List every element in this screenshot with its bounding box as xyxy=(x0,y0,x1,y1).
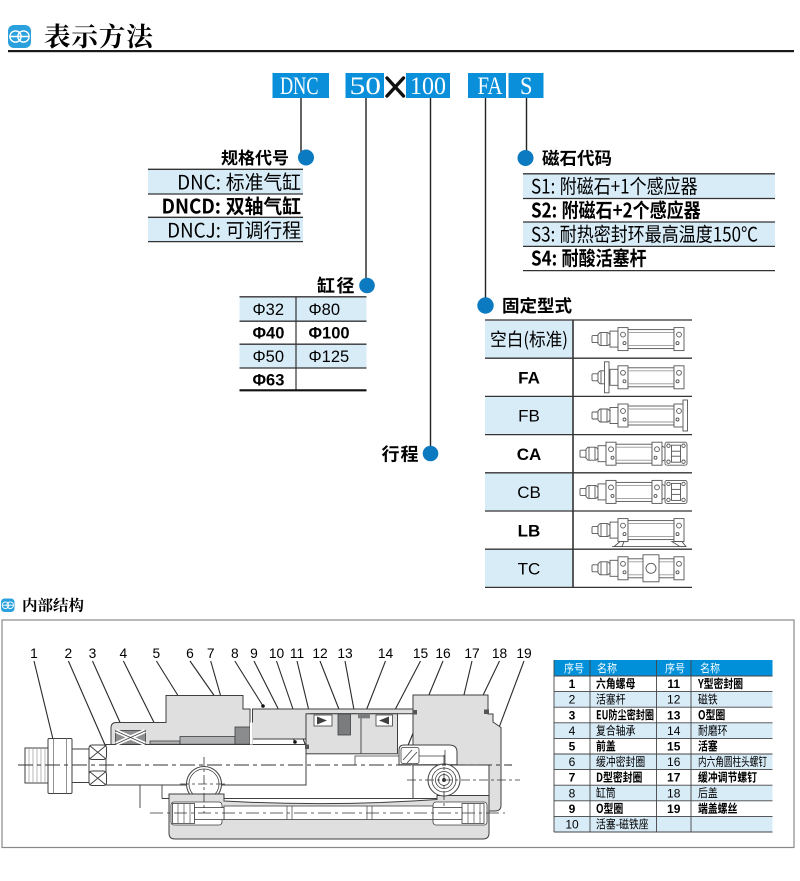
svg-text:14: 14 xyxy=(667,724,681,738)
svg-text:8: 8 xyxy=(231,646,239,661)
svg-text:15: 15 xyxy=(667,740,681,754)
svg-text:11: 11 xyxy=(290,646,304,661)
svg-text:18: 18 xyxy=(492,646,508,661)
svg-text:19: 19 xyxy=(667,802,681,816)
svg-text:11: 11 xyxy=(667,677,680,691)
svg-text:6: 6 xyxy=(186,646,194,661)
svg-text:4: 4 xyxy=(569,724,576,738)
svg-text:CA: CA xyxy=(517,445,542,464)
svg-text:18: 18 xyxy=(667,786,681,800)
svg-text:Φ50: Φ50 xyxy=(253,348,285,366)
svg-text:100: 100 xyxy=(410,73,446,100)
svg-text:16: 16 xyxy=(667,755,681,769)
svg-text:13: 13 xyxy=(337,646,353,661)
svg-text:19: 19 xyxy=(516,646,532,661)
svg-text:9: 9 xyxy=(569,802,576,816)
svg-text:6: 6 xyxy=(569,755,576,769)
svg-text:Φ63: Φ63 xyxy=(253,372,285,390)
svg-text:14: 14 xyxy=(378,646,394,661)
svg-text:LB: LB xyxy=(518,521,541,540)
svg-text:FA: FA xyxy=(478,73,503,100)
svg-text:Φ80: Φ80 xyxy=(309,301,341,319)
svg-text:DNC: DNC xyxy=(280,73,319,100)
svg-text:S: S xyxy=(520,73,533,100)
svg-text:2: 2 xyxy=(569,693,576,707)
svg-text:Φ125: Φ125 xyxy=(309,348,350,366)
svg-text:5: 5 xyxy=(153,646,161,661)
svg-text:Φ32: Φ32 xyxy=(253,301,285,319)
svg-text:Φ40: Φ40 xyxy=(253,325,285,343)
svg-text:12: 12 xyxy=(667,693,681,707)
svg-text:10: 10 xyxy=(565,818,579,832)
svg-text:7: 7 xyxy=(207,646,215,661)
svg-text:Φ100: Φ100 xyxy=(309,325,350,343)
svg-text:FB: FB xyxy=(518,407,540,426)
svg-text:1: 1 xyxy=(569,677,576,691)
svg-text:50: 50 xyxy=(350,73,382,100)
svg-text:16: 16 xyxy=(435,646,451,661)
svg-text:15: 15 xyxy=(413,646,429,661)
svg-text:17: 17 xyxy=(667,771,681,785)
svg-text:13: 13 xyxy=(667,708,681,722)
svg-text:9: 9 xyxy=(250,646,258,661)
svg-text:1: 1 xyxy=(30,646,38,661)
svg-text:3: 3 xyxy=(89,646,97,661)
svg-text:12: 12 xyxy=(312,646,327,661)
svg-text:3: 3 xyxy=(569,708,576,722)
svg-text:4: 4 xyxy=(120,646,128,661)
svg-text:FA: FA xyxy=(518,369,540,388)
svg-text:5: 5 xyxy=(569,740,576,754)
svg-text:8: 8 xyxy=(569,786,576,800)
svg-text:17: 17 xyxy=(464,646,479,661)
svg-text:7: 7 xyxy=(569,771,576,785)
svg-text:2: 2 xyxy=(65,646,73,661)
svg-text:10: 10 xyxy=(269,646,285,661)
svg-text:CB: CB xyxy=(517,483,541,502)
svg-text:TC: TC xyxy=(518,560,541,579)
